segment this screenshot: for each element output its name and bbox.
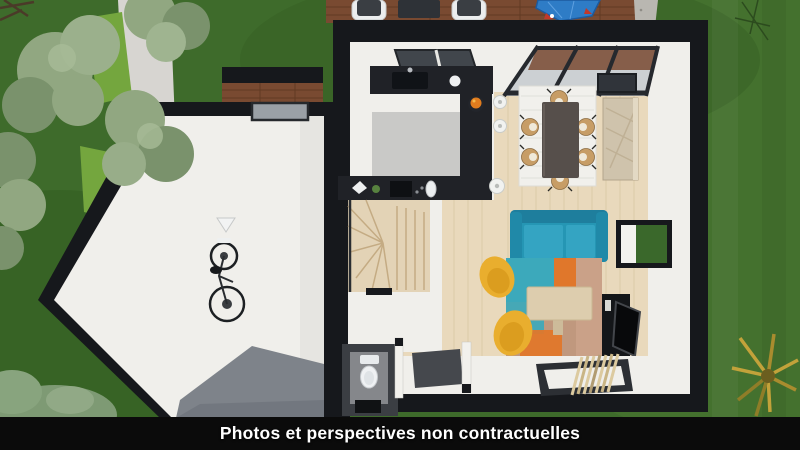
disclaimer-text: Photos et perspectives non contractuelle…	[220, 423, 580, 444]
faucet	[408, 68, 413, 73]
partition-wall	[395, 338, 403, 398]
sofa-arm	[510, 212, 522, 262]
counter-vase	[426, 181, 436, 197]
cooktop	[392, 72, 428, 89]
dining-wall-window	[598, 74, 636, 92]
garden-window	[616, 220, 672, 268]
stairs	[348, 200, 442, 292]
sideboard	[603, 98, 638, 180]
tv-unit-object	[605, 300, 611, 311]
sofa-arm	[596, 212, 608, 262]
bike-handlebar	[217, 238, 231, 243]
bike-saddle	[210, 266, 222, 274]
garage-wall-face	[300, 116, 324, 366]
wc	[342, 344, 398, 416]
fruit	[471, 98, 482, 109]
counter-plant	[372, 185, 380, 193]
toilet-tank	[360, 355, 379, 364]
stair-wall	[430, 200, 442, 292]
kitchen-counter-top	[370, 66, 493, 94]
partition-cap	[462, 384, 471, 393]
floor-plan-render: Photos et perspectives non contractuelle…	[0, 0, 800, 450]
tv-screen	[613, 302, 640, 356]
kitchen-sink	[450, 76, 461, 87]
dining-table	[542, 102, 579, 178]
deck-table	[398, 0, 440, 18]
sofa-cushion	[524, 225, 563, 258]
window-sill	[621, 225, 636, 263]
staircase	[348, 200, 442, 352]
window-grass-view	[636, 225, 667, 263]
sofa-back	[510, 210, 608, 223]
deck-edge-wall	[222, 67, 323, 83]
house	[333, 20, 708, 416]
lounger-cushion	[357, 0, 381, 16]
mow-stripe	[712, 0, 738, 450]
lounger-cushion	[457, 0, 481, 16]
sideboard-edge	[633, 98, 638, 180]
counter-tray	[390, 181, 412, 197]
coffee-table	[527, 287, 592, 320]
closet-slot	[366, 288, 392, 295]
scene-canvas	[0, 0, 800, 450]
garage-window	[252, 103, 308, 120]
dining-area	[519, 86, 638, 191]
sofa-cushion	[566, 225, 595, 258]
wc-threshold	[355, 400, 381, 413]
doormat	[412, 349, 463, 388]
sofa	[510, 210, 608, 262]
caption-bar: Photos et perspectives non contractuelle…	[0, 417, 800, 450]
kitchen-floor	[372, 112, 472, 178]
partition-cap	[395, 338, 403, 346]
